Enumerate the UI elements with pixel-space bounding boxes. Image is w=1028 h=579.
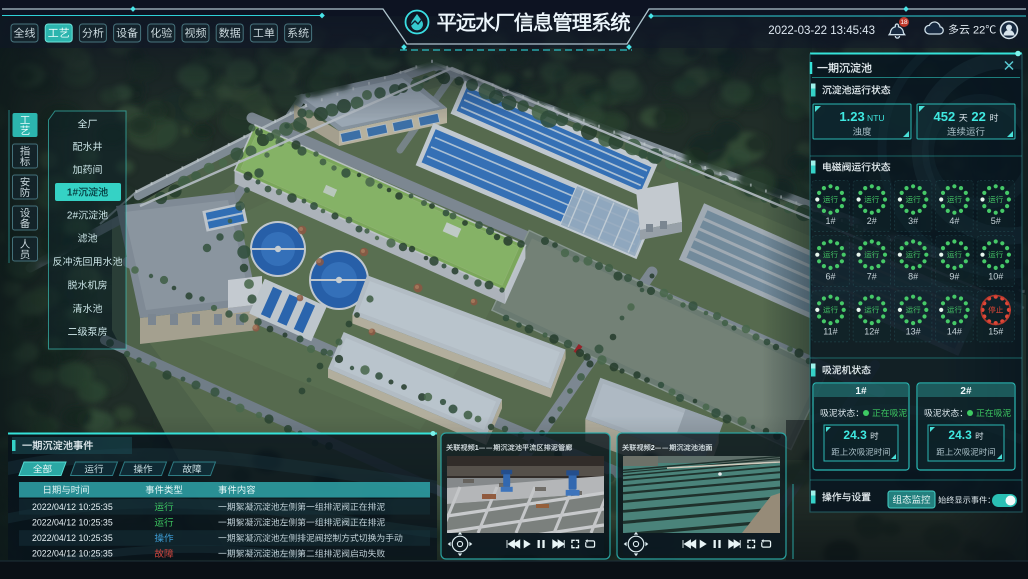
svg-text:2: 2 bbox=[651, 443, 655, 452]
svg-text:2#: 2# bbox=[867, 216, 877, 226]
svg-text:11#: 11# bbox=[823, 327, 837, 337]
svg-text:18: 18 bbox=[900, 19, 908, 26]
svg-text:10#: 10# bbox=[988, 271, 1003, 281]
svg-text:5#: 5# bbox=[991, 216, 1001, 226]
svg-text:NTU: NTU bbox=[865, 113, 885, 123]
svg-text:22: 22 bbox=[968, 109, 990, 124]
svg-text:2#: 2# bbox=[960, 386, 972, 397]
svg-text:2022/04/12 10:25:35: 2022/04/12 10:25:35 bbox=[32, 518, 113, 528]
svg-text:24.3: 24.3 bbox=[948, 428, 975, 442]
svg-text:7#: 7# bbox=[867, 271, 877, 281]
svg-text:3#: 3# bbox=[908, 216, 918, 226]
svg-text:2022-03-22 13:45:43: 2022-03-22 13:45:43 bbox=[768, 25, 875, 37]
svg-text:2022/04/12 10:25:35: 2022/04/12 10:25:35 bbox=[32, 549, 113, 559]
svg-text:1.23: 1.23 bbox=[839, 109, 864, 124]
svg-text:24.3: 24.3 bbox=[843, 428, 870, 442]
svg-text:6#: 6# bbox=[826, 271, 836, 281]
svg-text:4#: 4# bbox=[949, 216, 959, 226]
svg-text:9#: 9# bbox=[949, 271, 959, 281]
svg-text:22: 22 bbox=[970, 24, 985, 36]
svg-text:1#: 1# bbox=[826, 216, 836, 226]
svg-text:15#: 15# bbox=[988, 327, 1003, 337]
svg-text:8#: 8# bbox=[908, 271, 918, 281]
svg-text:2#: 2# bbox=[67, 211, 79, 222]
svg-text:1#: 1# bbox=[855, 386, 867, 397]
svg-text:13#: 13# bbox=[906, 327, 921, 337]
svg-text:1: 1 bbox=[475, 443, 479, 452]
svg-text:2022/04/12 10:25:35: 2022/04/12 10:25:35 bbox=[32, 533, 113, 543]
svg-text:1#: 1# bbox=[67, 188, 79, 199]
svg-text:14#: 14# bbox=[947, 327, 962, 337]
svg-text:452: 452 bbox=[934, 109, 959, 124]
svg-text:12#: 12# bbox=[864, 327, 879, 337]
svg-text:2022/04/12 10:25:35: 2022/04/12 10:25:35 bbox=[32, 502, 113, 512]
